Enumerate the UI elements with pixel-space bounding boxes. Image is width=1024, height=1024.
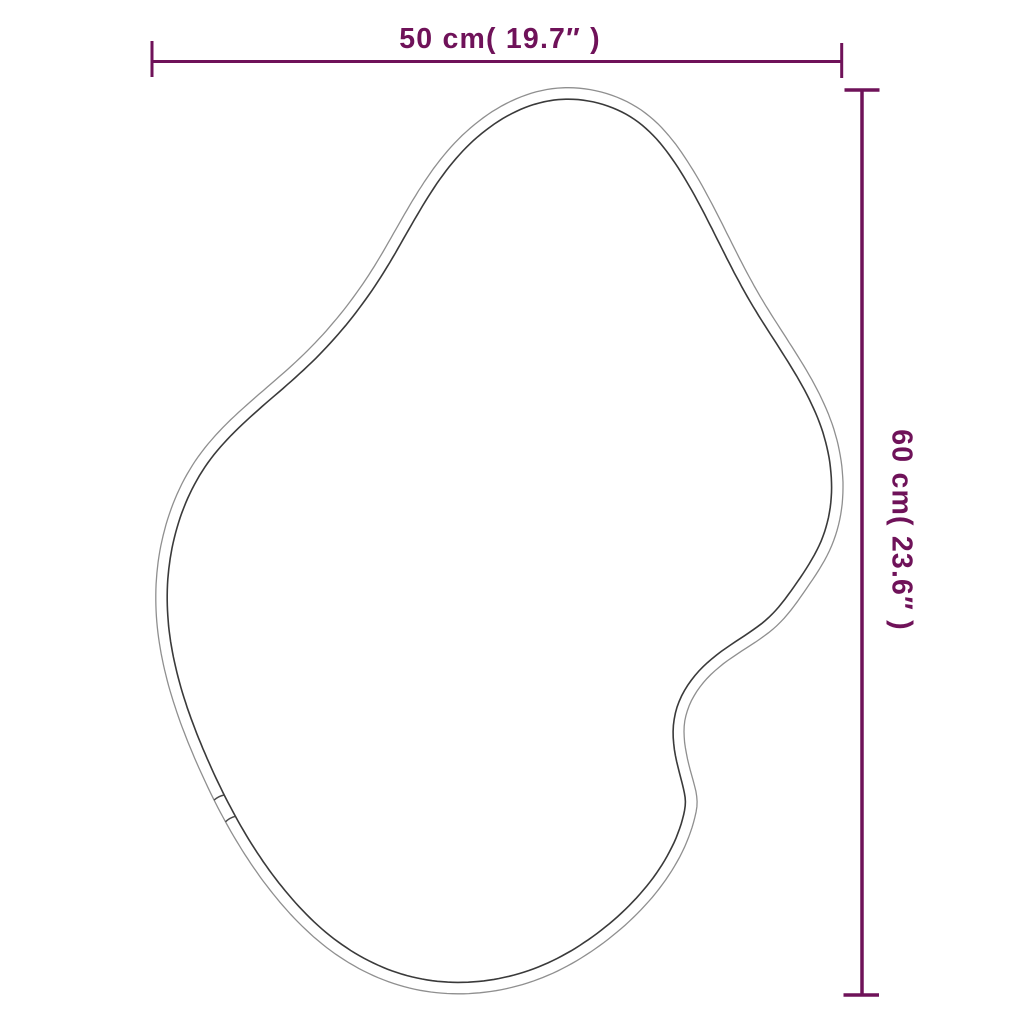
- svg-text:50 cm( 19.7″ ): 50 cm( 19.7″ ): [399, 23, 601, 55]
- svg-text:60 cm( 23.6″ ): 60 cm( 23.6″ ): [886, 429, 918, 631]
